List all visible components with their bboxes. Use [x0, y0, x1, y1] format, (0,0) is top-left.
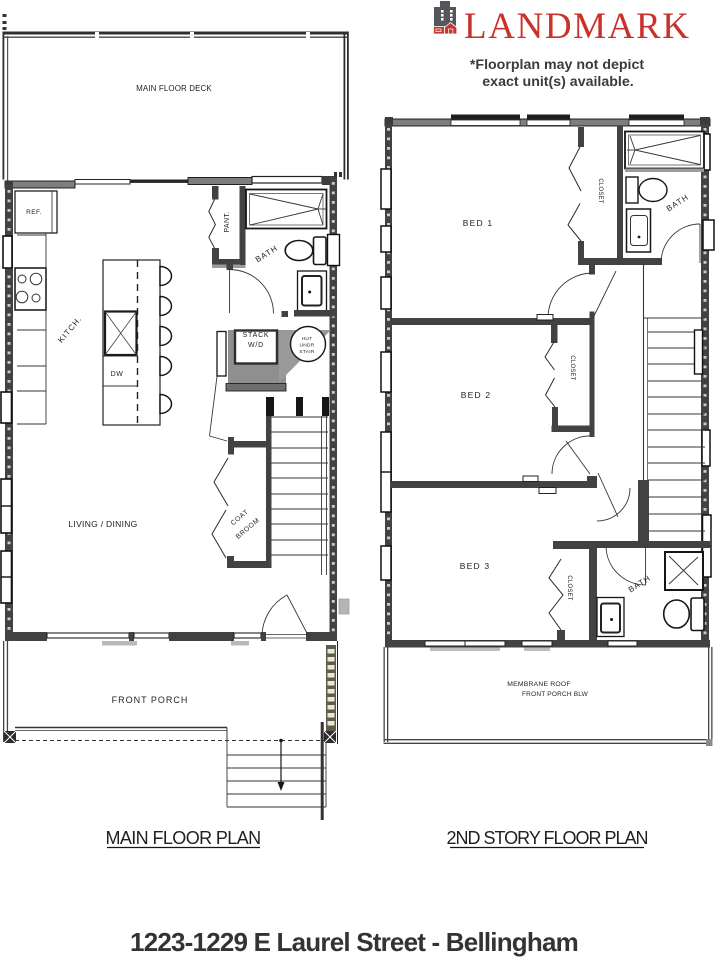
- svg-text:BED 1: BED 1: [463, 218, 494, 228]
- svg-text:STAIR: STAIR: [299, 349, 315, 355]
- svg-text:REF.: REF.: [26, 209, 42, 216]
- svg-text:LANDMARK: LANDMARK: [464, 6, 691, 47]
- svg-text:CLOSET: CLOSET: [566, 575, 572, 600]
- svg-text:PANT.: PANT.: [224, 211, 231, 232]
- svg-text:STACK: STACK: [243, 332, 270, 339]
- svg-text:LIVING / DINING: LIVING / DINING: [68, 519, 137, 529]
- svg-text:HUT: HUT: [302, 336, 313, 342]
- svg-text:MEMBRANE ROOF: MEMBRANE ROOF: [507, 681, 570, 688]
- svg-text:exact unit(s) available.: exact unit(s) available.: [482, 74, 633, 90]
- svg-text:W/D: W/D: [248, 342, 264, 349]
- svg-text:2ND STORY FLOOR PLAN: 2ND STORY FLOOR PLAN: [446, 828, 647, 848]
- svg-text:BED 2: BED 2: [461, 390, 492, 400]
- svg-text:FRONT PORCH: FRONT PORCH: [112, 695, 189, 705]
- svg-text:CLOSET: CLOSET: [597, 178, 603, 203]
- svg-text:MAIN FLOOR PLAN: MAIN FLOOR PLAN: [105, 828, 260, 848]
- svg-text:1223-1229 E Laurel Street - Be: 1223-1229 E Laurel Street - Bellingham: [130, 927, 578, 957]
- svg-text:DW: DW: [111, 371, 124, 378]
- svg-text:BED 3: BED 3: [460, 561, 491, 571]
- svg-text:MAIN FLOOR DECK: MAIN FLOOR DECK: [136, 84, 212, 93]
- svg-text:*Floorplan may not depict: *Floorplan may not depict: [470, 57, 644, 73]
- svg-text:CLOSET: CLOSET: [569, 355, 575, 380]
- svg-text:FRONT PORCH BLW: FRONT PORCH BLW: [522, 691, 589, 698]
- svg-text:UNDR: UNDR: [299, 343, 314, 349]
